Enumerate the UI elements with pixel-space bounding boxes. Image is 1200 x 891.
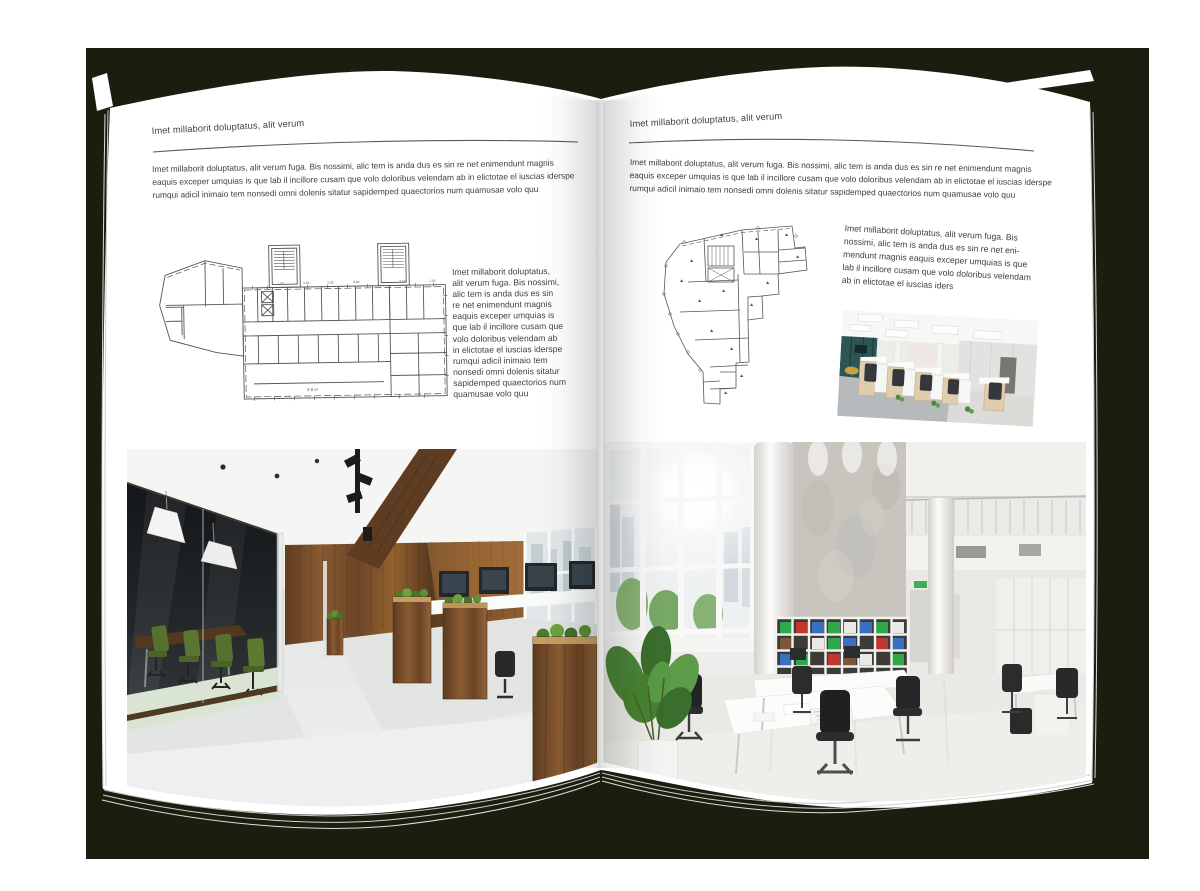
right-page-caption: Imet millaborit doluptatus, alit verum f…: [841, 222, 1044, 298]
floor-plan-irregular-building: [650, 222, 808, 412]
concrete-feature-wall: [792, 442, 906, 624]
photo-dark-wood-office: [127, 449, 597, 819]
plan-dim-3: 2.93: [327, 280, 333, 284]
plan-dim-1: 1.75: [277, 281, 283, 285]
left-page-intro: Imet millaborit doluptatus, alit verum f…: [152, 156, 593, 203]
left-page-spine-shading: [539, 95, 599, 785]
floor-plan-wide-building: 1.75 2.81 2.93 3.84 3.79 1.45 2-й эт: [157, 240, 452, 409]
photo-small-workstations: [837, 310, 1039, 427]
plan-floor-label: 2-й эт: [307, 387, 318, 392]
plan-room-markers: [680, 233, 799, 394]
small-planter: [327, 610, 344, 655]
right-page-spine-shading: [603, 95, 663, 785]
magazine-mockup-stage: Imet millaborit doluptatus, alit verum I…: [0, 0, 1200, 891]
plan-dim-5: 3.79: [399, 279, 405, 283]
photo-bright-white-office: [604, 442, 1086, 814]
plan-dim-6: 1.45: [429, 279, 435, 283]
right-page-intro: Imet millaborit doluptatus, alit verum f…: [629, 156, 1070, 203]
plan-dim-2: 2.81: [303, 281, 309, 285]
plan-dim-4: 3.84: [353, 280, 359, 284]
